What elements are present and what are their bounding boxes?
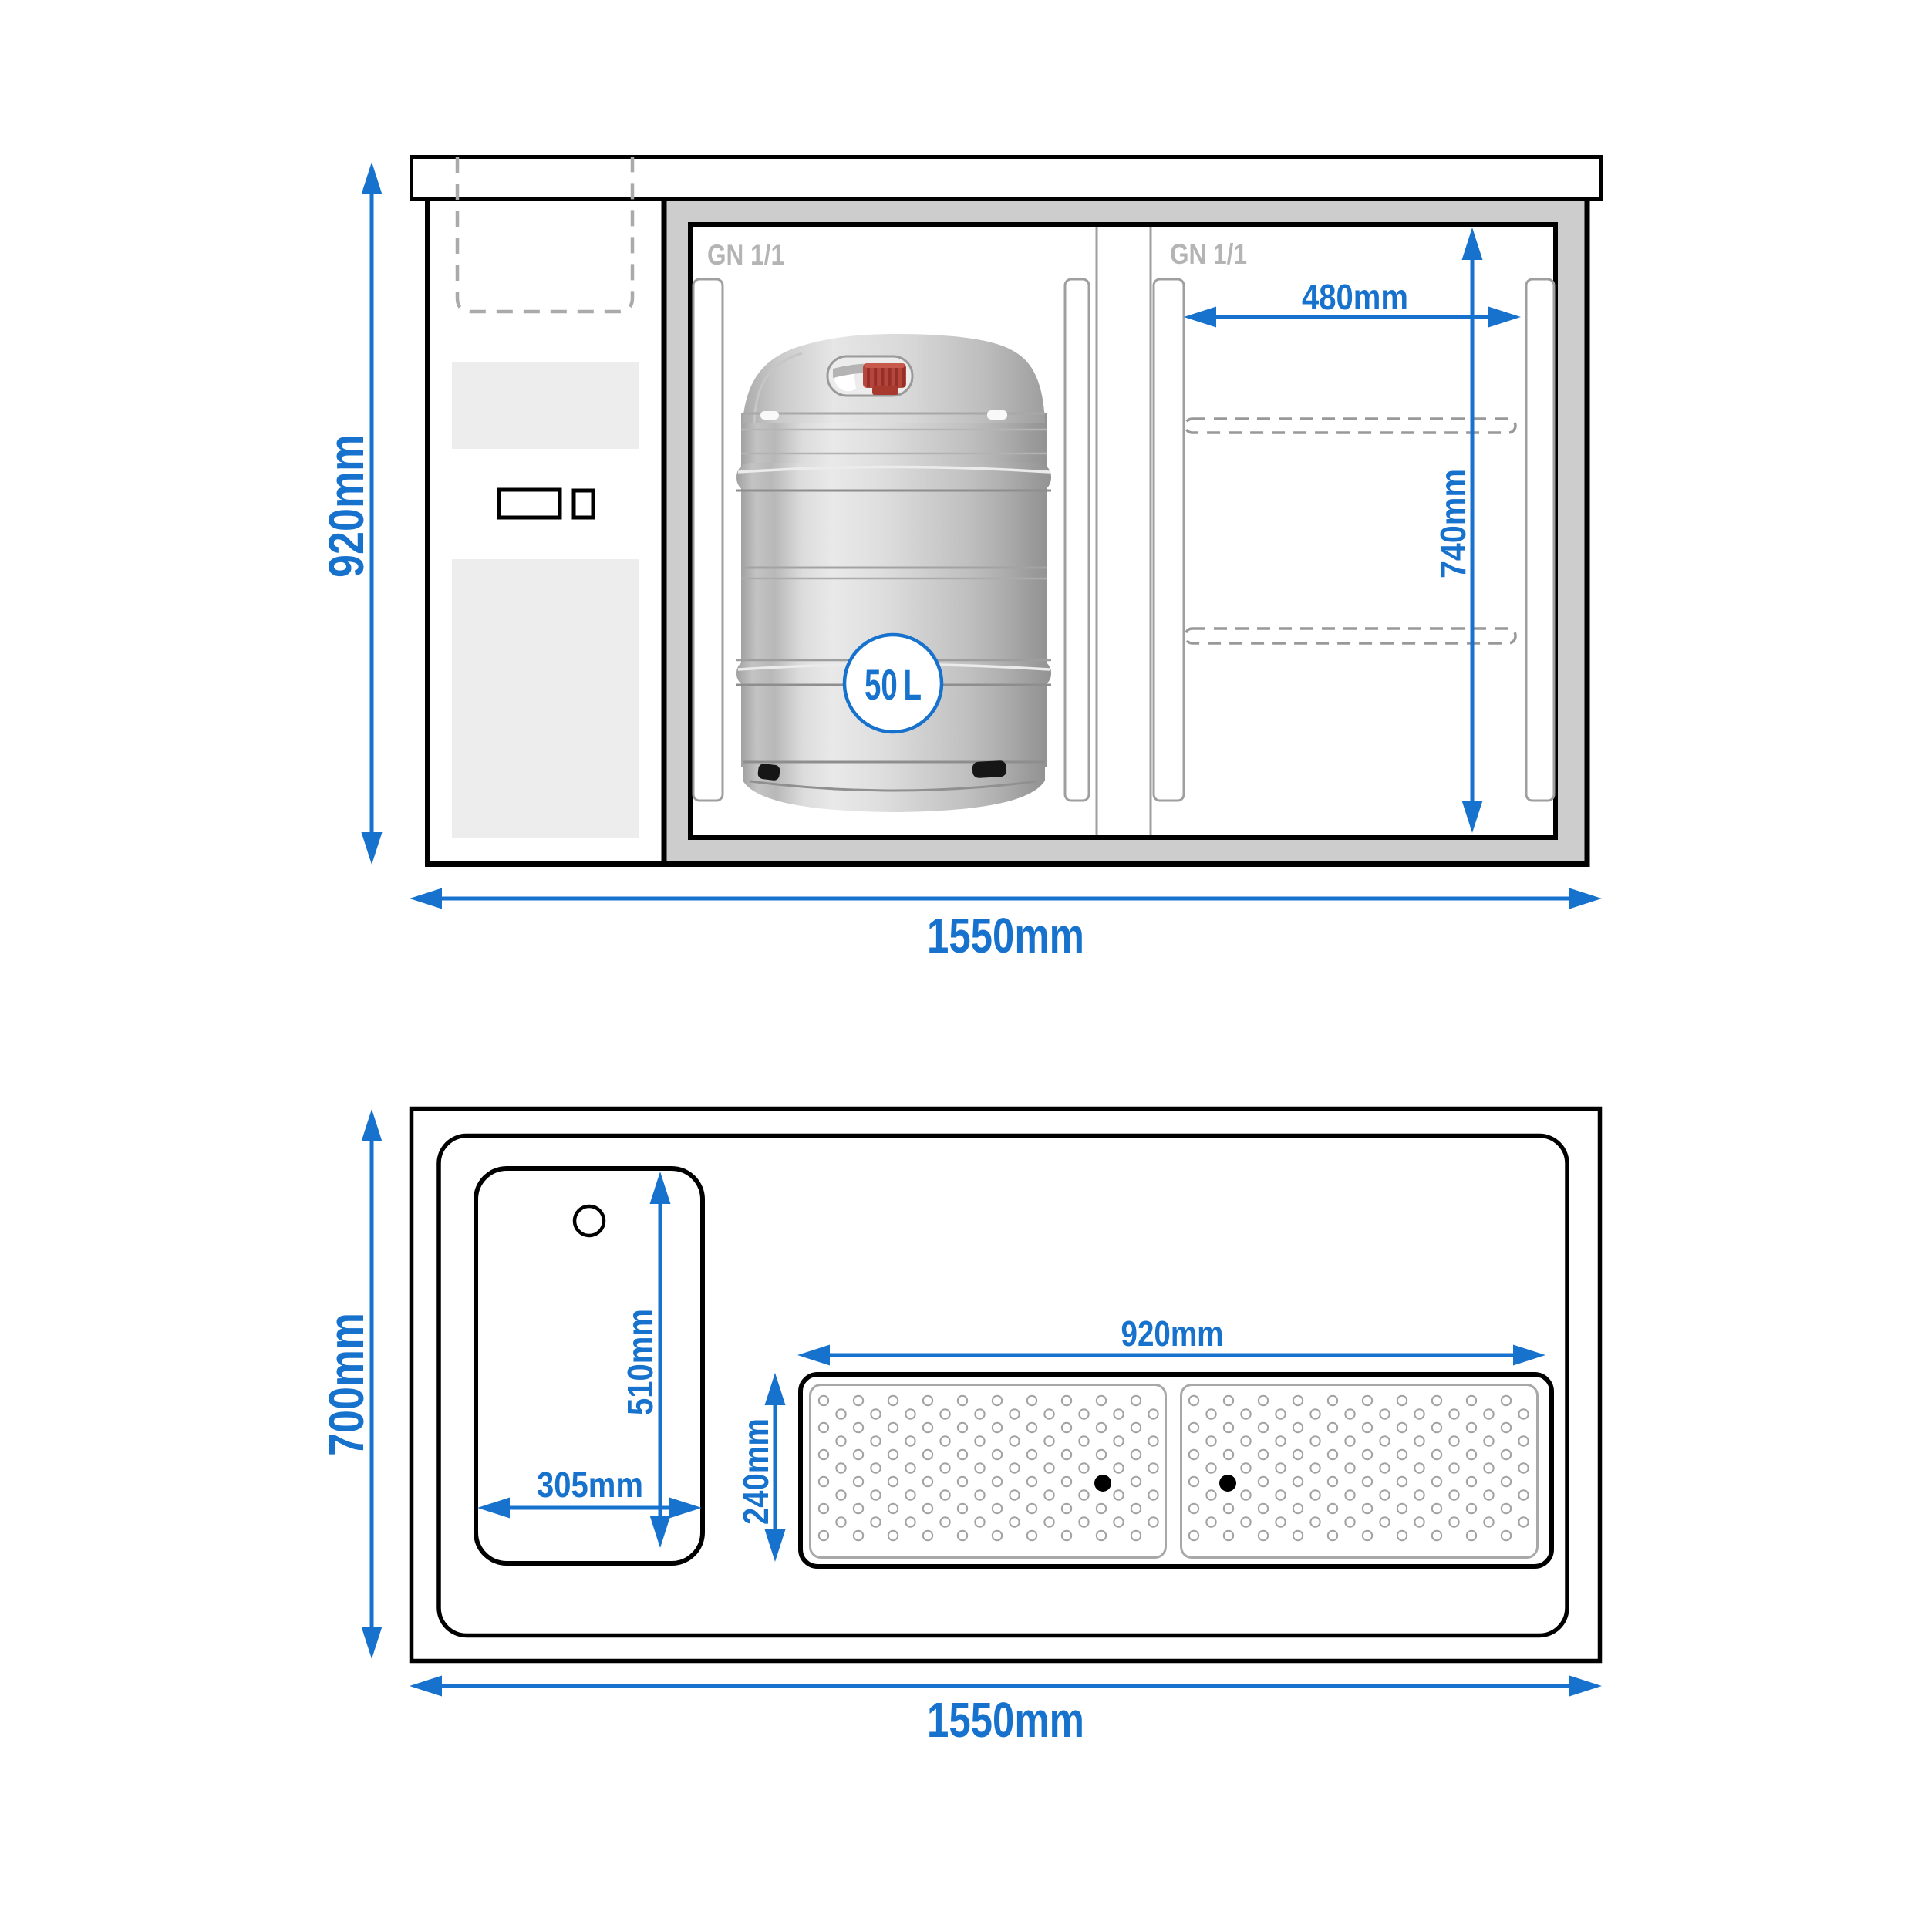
svg-text:740mm: 740mm xyxy=(1433,469,1473,578)
svg-text:920mm: 920mm xyxy=(319,434,374,578)
svg-text:GN 1/1: GN 1/1 xyxy=(707,239,784,271)
svg-text:480mm: 480mm xyxy=(1302,277,1408,317)
svg-text:GN 1/1: GN 1/1 xyxy=(1170,238,1247,270)
svg-text:50 L: 50 L xyxy=(865,660,922,709)
svg-text:305mm: 305mm xyxy=(537,1465,643,1505)
svg-text:240mm: 240mm xyxy=(736,1418,776,1525)
svg-text:920mm: 920mm xyxy=(1121,1313,1224,1354)
svg-text:1550mm: 1550mm xyxy=(927,1692,1084,1748)
svg-text:700mm: 700mm xyxy=(319,1313,374,1456)
svg-text:510mm: 510mm xyxy=(620,1309,660,1415)
svg-text:1550mm: 1550mm xyxy=(927,908,1084,963)
